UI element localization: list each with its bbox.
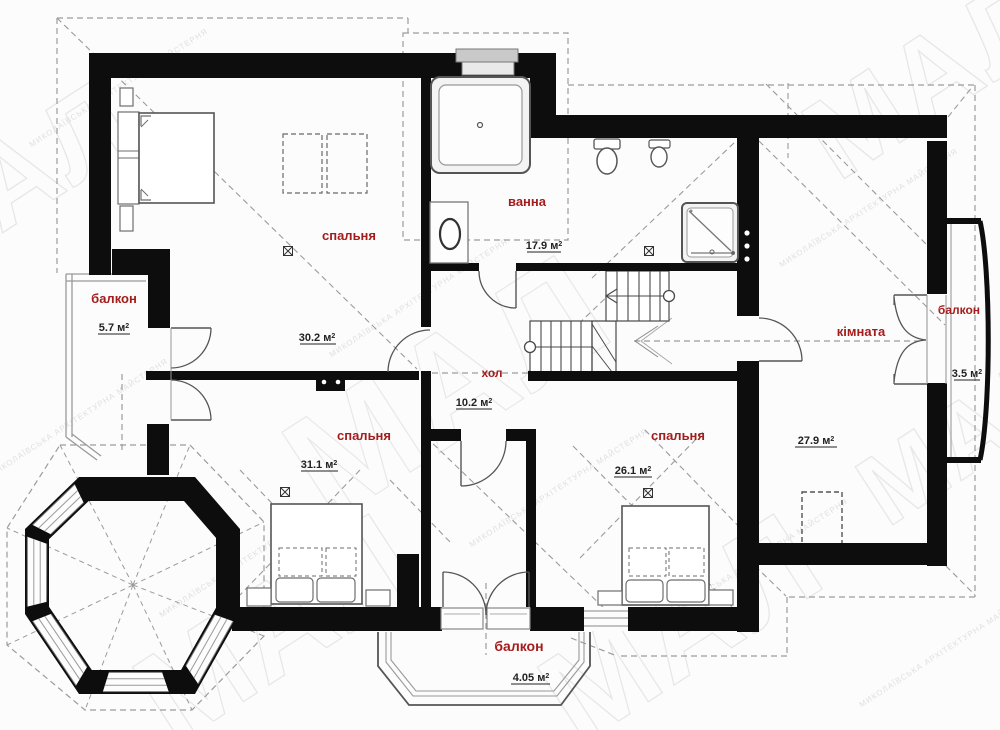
- svg-text:4.05 м2: 4.05 м2: [513, 672, 550, 684]
- svg-text:балкон: балкон: [938, 303, 980, 317]
- svg-text:31.1 м2: 31.1 м2: [301, 459, 338, 471]
- svg-text:кімната: кімната: [837, 324, 886, 339]
- svg-text:спальня: спальня: [337, 428, 391, 443]
- svg-text:балкон: балкон: [91, 291, 137, 306]
- svg-text:10.2 м2: 10.2 м2: [456, 397, 493, 409]
- svg-text:27.9 м2: 27.9 м2: [798, 435, 835, 447]
- svg-text:ванна: ванна: [508, 194, 547, 209]
- svg-text:17.9 м2: 17.9 м2: [526, 240, 563, 252]
- svg-text:30.2 м2: 30.2 м2: [299, 332, 336, 344]
- svg-text:балкон: балкон: [494, 638, 543, 654]
- svg-text:3.5 м2: 3.5 м2: [952, 368, 983, 380]
- svg-text:спальня: спальня: [651, 428, 705, 443]
- svg-text:спальня: спальня: [322, 228, 376, 243]
- svg-text:хол: хол: [481, 366, 502, 380]
- svg-text:26.1 м2: 26.1 м2: [615, 465, 652, 477]
- svg-text:5.7 м2: 5.7 м2: [99, 322, 130, 334]
